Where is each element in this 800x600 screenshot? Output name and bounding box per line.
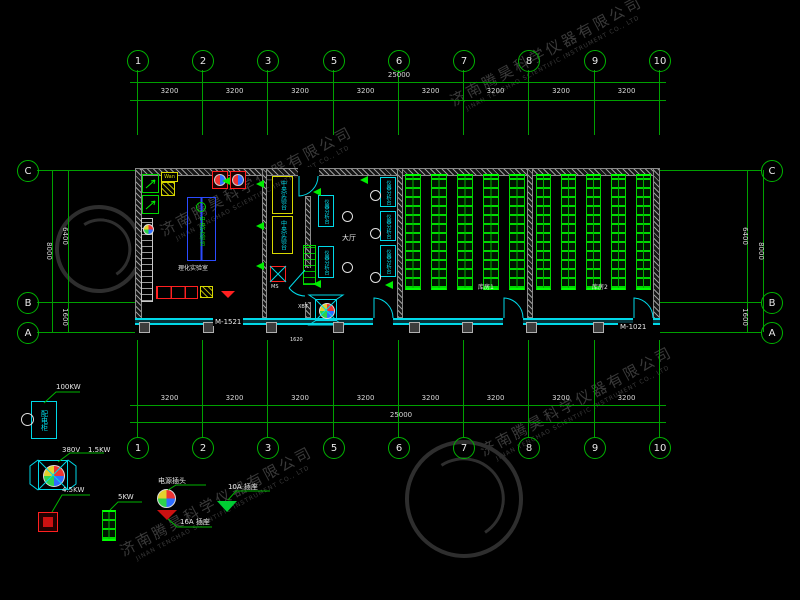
legend-fan-voltage: 380V (62, 446, 80, 454)
legend-socket16-icon (157, 510, 177, 520)
legend-rack-power: 5KW (118, 493, 134, 501)
door-arc (289, 270, 305, 296)
arrow-icon (146, 180, 155, 188)
door-arc (299, 176, 318, 196)
fan-frame (309, 295, 343, 325)
door-mark-right: M-1021 (618, 323, 648, 331)
window-column (526, 322, 537, 333)
hall-label: 大厅 (342, 233, 356, 243)
window-column (409, 322, 420, 333)
legend-socket10-label: 10A 插座 (228, 482, 258, 492)
ms-tag: MS (271, 284, 279, 290)
legend-cabinet-power: 100KW (56, 383, 81, 391)
room-left-label: 理化实验室 (178, 263, 208, 272)
leader-line (52, 495, 90, 512)
window-column (139, 322, 150, 333)
window-column (593, 322, 604, 333)
legend-socket10-icon (217, 501, 237, 512)
door-arc (504, 298, 523, 318)
arrow-icon (146, 201, 155, 209)
equipment-x-mark (270, 266, 286, 282)
room1-label: 库房1 (478, 282, 494, 291)
door-arc (374, 298, 393, 318)
legend-red-power: 4.5KW (62, 486, 84, 494)
legend-plug-label: 电源插头 (158, 476, 186, 486)
window-column (266, 322, 277, 333)
window-column (333, 322, 344, 333)
central-bench-label: 中央实验台 (198, 216, 204, 246)
room2-label: 库房2 (592, 282, 608, 291)
leader-line (58, 453, 104, 462)
cad-floor-plan-canvas: 济南腾昊科学仪器有限公司 JINAN TENGHAO SCIENTIFIC IN… (0, 0, 800, 600)
leader-line (228, 491, 270, 500)
window-column (462, 322, 473, 333)
legend-fan-power: 1.5KW (88, 446, 110, 454)
leader-line (44, 392, 80, 403)
fan-tag: XBT (298, 304, 308, 310)
socket-16a-mark (221, 291, 235, 298)
small-dimension: 1620 (290, 337, 303, 343)
legend-socket16-label: 16A 插座 (180, 517, 210, 527)
door-arc (634, 298, 653, 318)
leader-line (110, 502, 142, 510)
door-mark-left: M-1521 (213, 318, 243, 326)
annotation-overlay (0, 0, 800, 600)
